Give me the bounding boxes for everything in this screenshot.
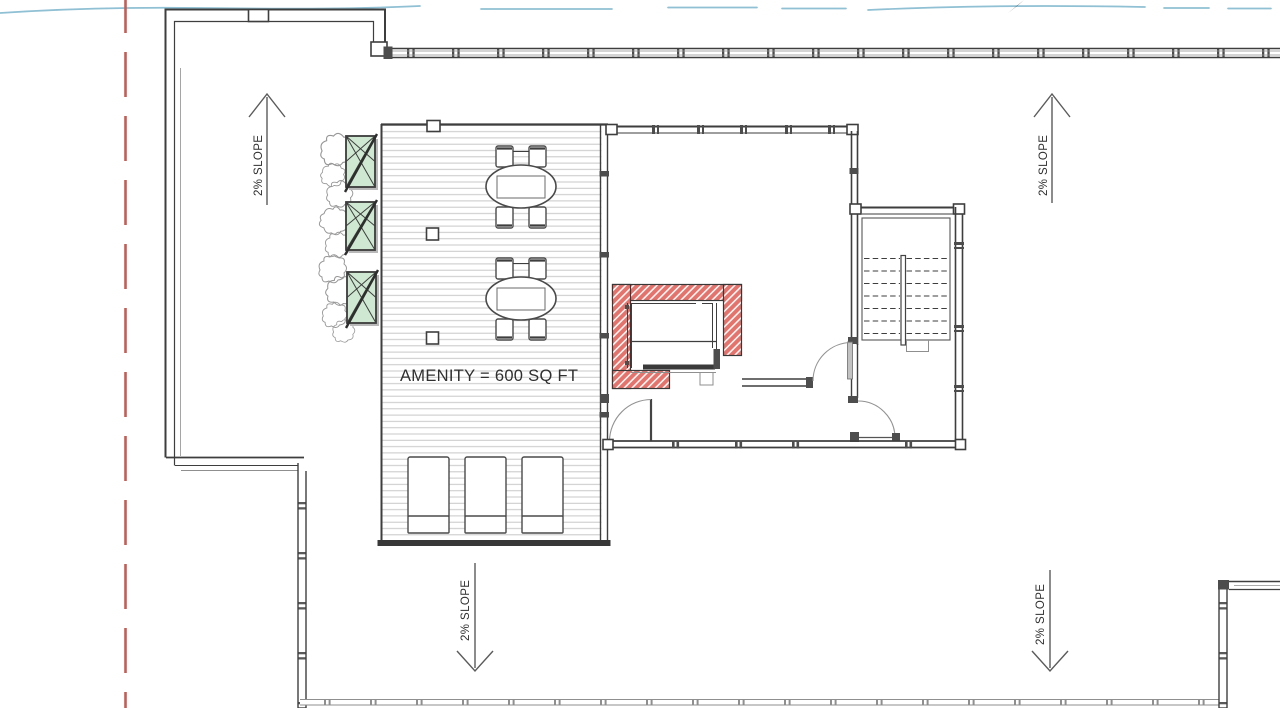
plan-linework: AMENITY = 600 SQ FT	[0, 0, 1280, 708]
amenity-area-label: AMENITY = 600 SQ FT	[400, 367, 578, 385]
door-swing-east	[850, 401, 900, 442]
elevator-shaft	[613, 285, 742, 389]
elevator-door	[643, 365, 715, 370]
room-top-wall	[606, 125, 858, 135]
left-lower-parapet-wall	[298, 463, 306, 708]
amenity-deck: AMENITY = 600 SQ FT	[315, 121, 611, 547]
lounge-chair	[522, 457, 563, 533]
stair-landing	[907, 340, 929, 352]
top-parapet-wall	[384, 47, 1280, 60]
slope-arrow-upper-right: 2% SLOPE	[1034, 94, 1070, 203]
shaft-wall-hatch	[613, 371, 670, 389]
slope-label: 2% SLOPE	[253, 135, 265, 196]
deck-post	[427, 332, 439, 344]
slope-label: 2% SLOPE	[460, 580, 472, 641]
floor-plan-drawing: AMENITY = 600 SQ FT	[0, 0, 1280, 708]
lounge-chair	[465, 457, 506, 533]
slope-arrow-lower-left: 2% SLOPE	[457, 563, 493, 671]
planter-box	[345, 134, 378, 192]
door-swing-stair	[813, 342, 853, 381]
stair-divider	[901, 256, 906, 346]
stairwell	[850, 204, 965, 448]
slope-label: 2% SLOPE	[1038, 135, 1050, 196]
low-wall	[742, 377, 813, 388]
deck-post	[427, 228, 439, 240]
deck-post	[427, 121, 440, 132]
shaft-wall-hatch	[724, 285, 742, 356]
slope-arrow-lower-right: 2% SLOPE	[1032, 570, 1068, 671]
door-leaf	[848, 342, 853, 379]
revision-cloud-line	[0, 0, 1271, 13]
bottom-right-parapet-wall	[1218, 580, 1280, 708]
slope-label: 2% SLOPE	[1035, 584, 1047, 645]
shaft-wall-hatch	[613, 285, 742, 301]
room-east-wall	[848, 131, 859, 345]
planter-box	[346, 270, 379, 328]
planter-box	[345, 200, 378, 255]
deck-edge-thick	[378, 540, 611, 546]
lounge-chair	[408, 457, 449, 533]
bottom-parapet-wall	[300, 700, 1222, 706]
elevator-car	[625, 303, 720, 385]
slope-arrow-upper-left: 2% SLOPE	[249, 94, 285, 205]
roof-structure	[600, 125, 966, 450]
room-bottom-wall	[603, 440, 966, 450]
planters	[315, 133, 379, 342]
lounge-chairs	[408, 457, 563, 533]
